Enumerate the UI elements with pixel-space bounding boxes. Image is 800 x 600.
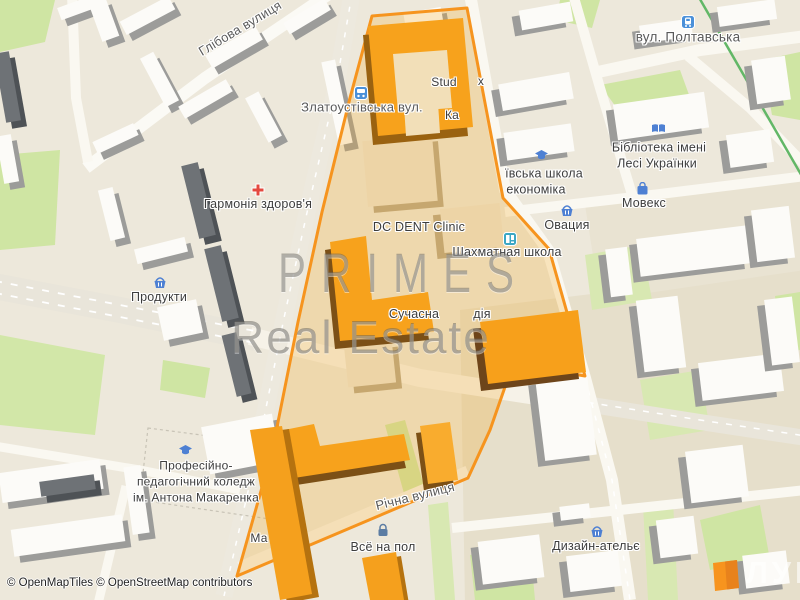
graduation-cap-icon[interactable] <box>178 444 192 458</box>
open-book-icon[interactable] <box>651 123 665 137</box>
map-attribution[interactable]: © OpenMapTiles © OpenStreetMap contribut… <box>7 577 252 589</box>
lun-logo[interactable]: ЛУН <box>711 558 800 592</box>
poi-label-dc-dent: DC DENT Clinic <box>373 220 465 234</box>
poi-label-econ-school-1: ївська школа <box>505 167 583 182</box>
poi-label-college-2: педагогічний коледж <box>137 475 255 490</box>
lun-logo-icon <box>711 560 741 592</box>
shopping-basket-icon[interactable] <box>590 525 604 539</box>
poi-label-ovatsia: Овация <box>544 218 589 232</box>
shopping-basket-icon[interactable] <box>153 276 167 290</box>
street-label-poltavska: вул. Полтавська <box>636 30 741 45</box>
poi-label-design-atelier: Дизайн-ательє <box>552 539 640 553</box>
street-label-zlatoustivska: Златоустівська вул. <box>301 100 423 115</box>
poi-label-library-2: Лесі Українки <box>617 157 697 172</box>
watermark-subtitle: Real Estate <box>231 310 491 364</box>
tram-stop-icon[interactable] <box>681 15 695 29</box>
poi-label-college-1: Професійно- <box>159 459 232 474</box>
map-viewport[interactable]: Глібова вулиця Златоустівська вул. вул. … <box>0 0 800 600</box>
poi-label-stud: Stud <box>431 75 457 89</box>
poi-label-library-1: Бібліотека імені <box>612 141 706 156</box>
shopping-basket-icon[interactable] <box>560 204 574 218</box>
watermark-brand: PRIMES <box>278 240 529 305</box>
poi-label-produkty: Продукти <box>131 290 187 304</box>
poi-label-college-3: ім. Антона Макаренка <box>133 491 259 506</box>
poi-label-ma: Ма <box>250 531 267 545</box>
lun-logo-text: ЛУН <box>746 555 800 591</box>
shopping-bag-icon[interactable] <box>636 182 650 196</box>
padlock-icon[interactable] <box>377 523 391 537</box>
poi-label-movex: Мовекс <box>622 196 666 210</box>
medical-cross-icon[interactable] <box>251 183 265 197</box>
bus-stop-icon[interactable] <box>354 86 368 100</box>
poi-label-stud-x: x <box>478 74 484 88</box>
graduation-cap-icon[interactable] <box>534 149 548 163</box>
poi-label-harmonia: Гармонія здоров'я <box>204 197 312 211</box>
poi-label-econ-school-2: економіка <box>506 183 565 198</box>
poi-label-kashtan: Ка <box>445 108 459 122</box>
poi-label-vse-na-pol: Всё на пол <box>350 540 415 554</box>
